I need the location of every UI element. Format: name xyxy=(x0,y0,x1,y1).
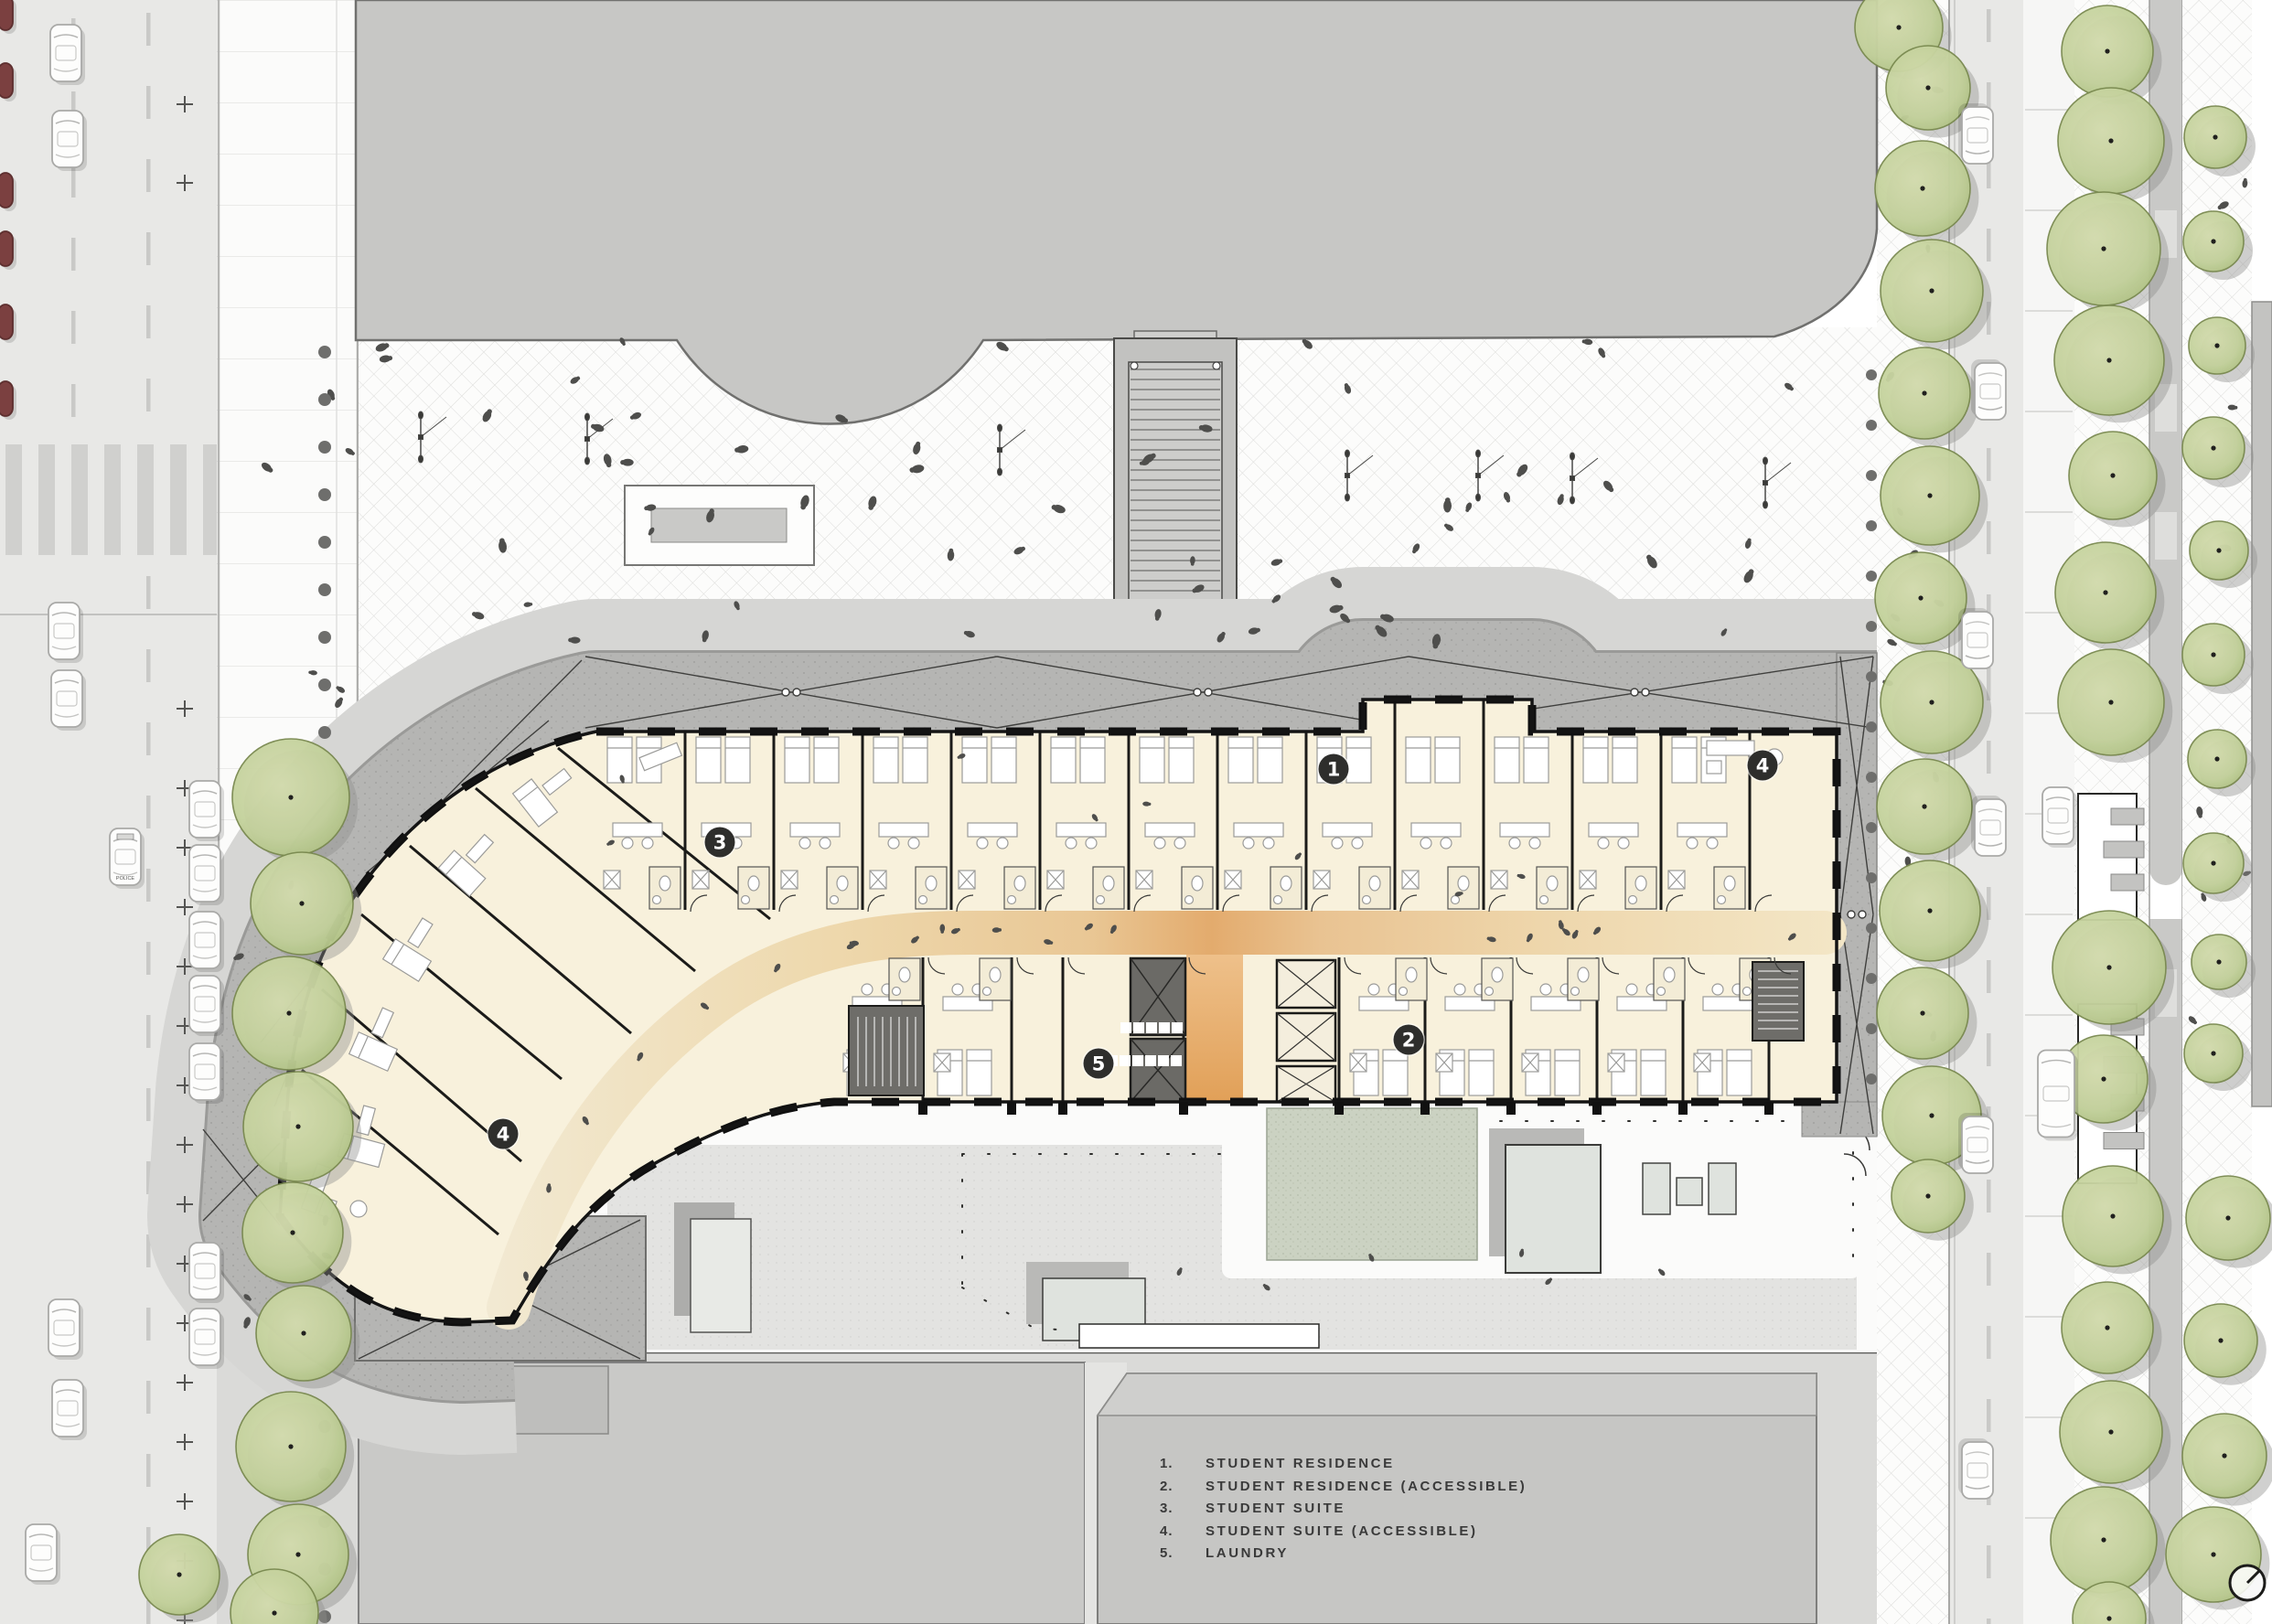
mini xyxy=(0,173,16,211)
bollard xyxy=(318,488,331,501)
police-car: POLICE xyxy=(110,828,145,889)
crosswalk-bar xyxy=(38,444,55,555)
tree xyxy=(2062,1282,2153,1373)
bollard xyxy=(318,346,331,358)
mini xyxy=(0,231,16,270)
legend-item-number: 1. xyxy=(1160,1456,1206,1471)
marker-4: 4 xyxy=(1748,751,1778,781)
truck xyxy=(2038,1051,2078,1141)
tree xyxy=(2184,1024,2243,1083)
tree xyxy=(2183,211,2244,272)
bollard xyxy=(318,536,331,549)
crosswalk-bar xyxy=(71,444,88,555)
car xyxy=(48,603,83,663)
car xyxy=(189,1043,224,1104)
tree xyxy=(2182,417,2245,479)
crosswalk-bar xyxy=(5,444,22,555)
tree xyxy=(1875,141,1970,236)
bollard xyxy=(1866,520,1877,531)
tree xyxy=(2058,649,2164,755)
mini xyxy=(0,63,16,101)
bollard xyxy=(318,678,331,691)
tree xyxy=(2188,730,2246,788)
tree xyxy=(256,1286,351,1381)
legend-item: 1.STUDENT RESIDENCE xyxy=(1160,1456,1527,1479)
tree xyxy=(1880,860,1980,961)
tree xyxy=(232,956,346,1070)
plaza-fountain xyxy=(625,486,814,565)
bollard xyxy=(318,726,331,739)
legend-item-label: STUDENT RESIDENCE xyxy=(1206,1456,1395,1471)
legend-item: 2.STUDENT RESIDENCE (ACCESSIBLE) xyxy=(1160,1479,1527,1501)
tree xyxy=(232,739,349,856)
north-arrow-icon xyxy=(2230,1565,2265,1600)
left-road xyxy=(0,0,220,1624)
legend-item-number: 5. xyxy=(1160,1545,1206,1561)
car xyxy=(1958,103,1993,164)
tree xyxy=(243,1072,353,1181)
tree xyxy=(1877,967,1968,1059)
car xyxy=(26,1524,60,1585)
tree xyxy=(2184,1304,2257,1377)
tree xyxy=(2060,1381,2162,1483)
tree xyxy=(2184,106,2246,168)
tree xyxy=(2190,521,2248,580)
tree xyxy=(2183,833,2244,893)
bollard xyxy=(1866,872,1877,883)
bollard xyxy=(1866,1074,1877,1084)
bollard xyxy=(318,631,331,644)
tree xyxy=(1886,46,1970,130)
tree xyxy=(2192,935,2246,989)
tree xyxy=(2052,911,2166,1024)
car xyxy=(1958,608,1993,668)
tree xyxy=(1881,446,1979,545)
bollard xyxy=(1866,923,1877,934)
car xyxy=(189,781,224,841)
skylight xyxy=(691,1219,751,1332)
car xyxy=(2042,787,2077,848)
legend-item-label: STUDENT SUITE (ACCESSIBLE) xyxy=(1206,1523,1478,1539)
car xyxy=(50,25,85,85)
lobby xyxy=(1186,955,1243,1102)
tree xyxy=(1879,347,1970,439)
mini xyxy=(0,304,16,343)
tree xyxy=(139,1534,220,1615)
bollard xyxy=(1866,571,1877,582)
tree xyxy=(2063,1166,2163,1266)
car xyxy=(1958,1113,1993,1173)
bollard xyxy=(1866,973,1877,984)
tree xyxy=(2055,542,2156,643)
legend-item-label: LAUNDRY xyxy=(1206,1545,1289,1561)
tree xyxy=(1877,759,1972,854)
tree xyxy=(2058,88,2164,194)
tree xyxy=(242,1182,343,1283)
car xyxy=(189,1243,224,1303)
bollard xyxy=(1866,1023,1877,1034)
bollard xyxy=(318,393,331,406)
tree xyxy=(1892,1159,1965,1233)
legend-item: 3.STUDENT SUITE xyxy=(1160,1501,1527,1523)
bollard xyxy=(1866,420,1877,431)
tree xyxy=(236,1392,346,1501)
tree xyxy=(2182,624,2245,686)
police-label: POLICE xyxy=(116,876,135,881)
marker-4: 4 xyxy=(488,1119,519,1149)
car xyxy=(1971,796,2006,856)
courtyard xyxy=(585,1102,1877,1352)
marker-3: 3 xyxy=(705,828,735,858)
legend-item-label: STUDENT RESIDENCE (ACCESSIBLE) xyxy=(1206,1479,1527,1494)
legend-item: 4.STUDENT SUITE (ACCESSIBLE) xyxy=(1160,1523,1527,1546)
bollard xyxy=(1866,671,1877,682)
tree xyxy=(1881,240,1983,342)
site-plan-canvas: POLICE xyxy=(0,0,2272,1624)
bollard xyxy=(1866,621,1877,632)
legend: 1.STUDENT RESIDENCE2.STUDENT RESIDENCE (… xyxy=(1160,1456,1527,1568)
planter xyxy=(1267,1108,1477,1260)
tree xyxy=(2186,1176,2270,1260)
legend-item: 5.LAUNDRY xyxy=(1160,1545,1527,1568)
tree xyxy=(251,852,353,955)
bollard xyxy=(318,441,331,454)
bollard xyxy=(1866,772,1877,783)
tree xyxy=(2062,5,2153,97)
car xyxy=(51,670,86,731)
legend-item-number: 4. xyxy=(1160,1523,1206,1539)
bollard xyxy=(318,583,331,596)
crosswalk-bar xyxy=(104,444,121,555)
mini xyxy=(0,381,16,420)
legend-item-number: 3. xyxy=(1160,1501,1206,1516)
bollard xyxy=(1866,721,1877,732)
tree xyxy=(2189,317,2245,374)
bollard xyxy=(1866,822,1877,833)
car xyxy=(189,1309,224,1369)
car xyxy=(52,1380,87,1440)
car xyxy=(1971,359,2006,420)
mini xyxy=(0,0,16,34)
tree xyxy=(2051,1487,2157,1593)
marker-1: 1 xyxy=(1319,754,1349,785)
car xyxy=(52,111,87,171)
marker-2: 2 xyxy=(1394,1025,1424,1055)
bollard xyxy=(1866,369,1877,380)
car xyxy=(189,912,224,972)
site-plan: POLICE xyxy=(0,0,2272,1624)
tree xyxy=(1875,552,1967,644)
car xyxy=(189,976,224,1036)
tree xyxy=(2054,305,2164,415)
tree xyxy=(2047,192,2160,305)
car xyxy=(189,845,224,905)
crosswalk-bar xyxy=(137,444,154,555)
bollard xyxy=(1866,470,1877,481)
car xyxy=(1958,1438,1993,1499)
tree xyxy=(2182,1414,2267,1498)
legend-item-label: STUDENT SUITE xyxy=(1206,1501,1345,1516)
marker-5: 5 xyxy=(1084,1049,1114,1079)
crosswalk-bar xyxy=(170,444,187,555)
tree xyxy=(2069,432,2157,519)
legend-item-number: 2. xyxy=(1160,1479,1206,1494)
car xyxy=(48,1299,83,1360)
